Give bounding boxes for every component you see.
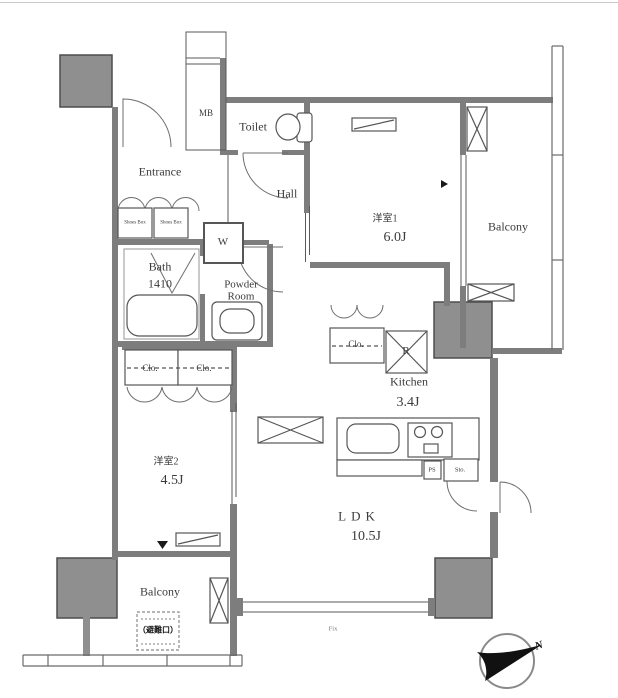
- label-bath-size: 1410: [148, 277, 172, 290]
- column-bottom-left: [57, 558, 117, 618]
- label-balcony-top: Balcony: [488, 220, 528, 233]
- label-powder-room: Powder Room: [212, 279, 270, 304]
- label-fix-window: Fix: [329, 625, 338, 632]
- label-shoes-box-left: Shoes Box: [120, 220, 150, 225]
- entrance-door-arc: [123, 99, 171, 147]
- kitchen-sink-icon: [347, 424, 399, 453]
- counter-front: [337, 460, 422, 476]
- room2-folding-doors: [127, 387, 232, 402]
- label-pipe-space: PS: [428, 466, 435, 473]
- label-washer: W: [218, 236, 228, 248]
- label-hall: Hall: [277, 187, 298, 200]
- service-door-arc: [500, 482, 531, 513]
- crossed-marker-top: [467, 107, 487, 151]
- balcony-railing-bottom: [23, 655, 242, 666]
- marker-triangle-room2: [157, 541, 168, 549]
- compass-icon: [477, 634, 540, 688]
- label-shoes-box-right: Shoes Box: [156, 220, 186, 225]
- label-western1: 洋室1: [373, 213, 398, 224]
- label-ldk-size: 10.5J: [351, 529, 381, 545]
- label-kitchen: Kitchen: [390, 375, 428, 388]
- floor-plan-linework: [0, 0, 618, 698]
- window-marker-room1: [352, 118, 396, 131]
- label-closet-w2-right: Clo.: [196, 363, 211, 373]
- closet-boxes: [125, 350, 232, 385]
- label-bath: Bath: [149, 260, 172, 273]
- label-refrigerator: R: [402, 345, 409, 357]
- balcony-railing-right: [552, 46, 563, 350]
- label-entrance: Entrance: [139, 165, 182, 178]
- label-toilet: Toilet: [239, 120, 267, 133]
- counter-crossed-box: [258, 417, 323, 443]
- label-western1-size: 6.0J: [384, 230, 407, 246]
- sink-icon: [212, 302, 262, 340]
- column-bottom-right: [435, 558, 492, 618]
- label-closet-w2-left: Clo.: [142, 363, 157, 373]
- label-closet-w1: Clo.: [348, 339, 363, 349]
- label-storage: Sto.: [455, 466, 465, 473]
- label-escape-hatch: （避難口）: [138, 627, 178, 636]
- crossed-marker-sw-balcony: [210, 578, 228, 623]
- ldk-door-arc: [447, 481, 477, 511]
- column-stub: [83, 616, 90, 656]
- label-balcony-bottom: Balcony: [140, 585, 180, 598]
- marker-triangle-room1: [441, 180, 448, 188]
- label-western2: 洋室2: [154, 456, 179, 467]
- label-western2-size: 4.5J: [161, 473, 184, 489]
- room1-closet-folding-doors: [331, 305, 383, 318]
- label-meter-box: MB: [199, 108, 213, 118]
- crossed-marker-ne-balcony: [468, 284, 514, 301]
- label-kitchen-size: 3.4J: [397, 395, 420, 411]
- floor-plan: Entrance Hall Toilet MB Bath 1410 Powder…: [0, 0, 618, 698]
- stove-icon: [408, 423, 452, 457]
- column-top-left: [60, 55, 112, 107]
- window-marker-room2: [176, 533, 220, 546]
- bathtub-icon: [127, 295, 197, 336]
- toilet-icon: [276, 113, 312, 142]
- label-ldk: LDK: [338, 510, 380, 525]
